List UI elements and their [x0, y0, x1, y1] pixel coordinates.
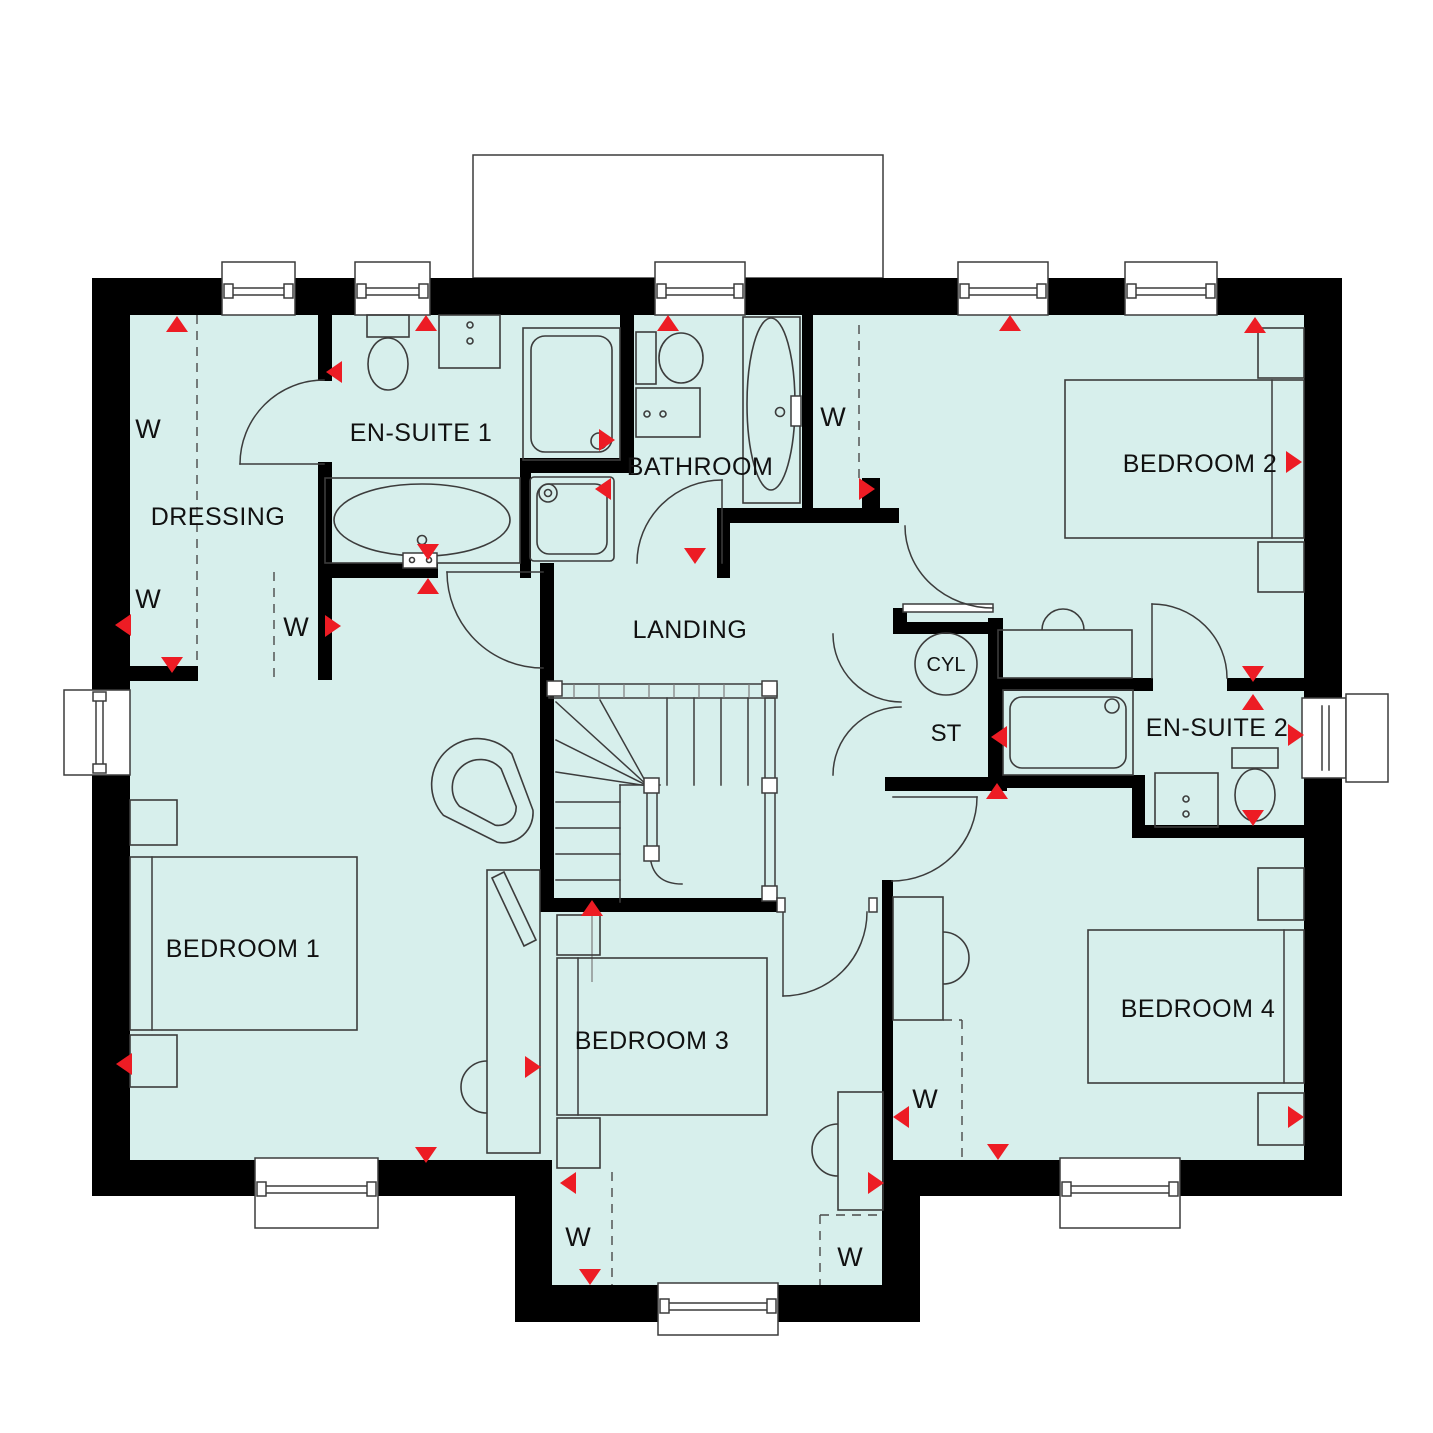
room-label-bathroom: BATHROOM — [627, 453, 774, 481]
room-label-dressing: DRESSING — [151, 503, 286, 531]
window — [958, 262, 1048, 315]
wardrobe-label: W — [135, 414, 161, 444]
room-label-bedroom2: BEDROOM 2 — [1123, 450, 1278, 478]
window — [1302, 694, 1388, 782]
room-label-landing: LANDING — [633, 616, 748, 644]
window — [1060, 1158, 1180, 1228]
room-label-ensuite1: EN-SUITE 1 — [350, 419, 493, 447]
floor-plan-canvas: DRESSING EN-SUITE 1 BATHROOM BEDROOM 2 L… — [0, 0, 1433, 1433]
window — [658, 1283, 778, 1335]
wardrobe-label: W — [565, 1222, 591, 1252]
wardrobe-label: W — [912, 1084, 938, 1114]
room-label-ensuite2: EN-SUITE 2 — [1146, 714, 1289, 742]
label-cylinder: CYL — [927, 654, 966, 676]
wardrobe-label: W — [837, 1242, 863, 1272]
wardrobe-label: W — [135, 584, 161, 614]
room-label-bedroom3: BEDROOM 3 — [575, 1027, 730, 1055]
wardrobe-label: W — [820, 402, 846, 432]
window — [1125, 262, 1217, 315]
window — [222, 262, 295, 315]
floor-plan-page: DRESSING EN-SUITE 1 BATHROOM BEDROOM 2 L… — [0, 0, 1433, 1433]
room-label-store: ST — [931, 720, 962, 747]
window — [255, 1158, 378, 1228]
room-label-bedroom1: BEDROOM 1 — [166, 935, 321, 963]
wardrobe-label: W — [283, 612, 309, 642]
window — [655, 262, 745, 315]
window — [355, 262, 430, 315]
canopy-outline — [473, 155, 883, 278]
room-label-bedroom4: BEDROOM 4 — [1121, 995, 1276, 1023]
window — [64, 690, 130, 775]
